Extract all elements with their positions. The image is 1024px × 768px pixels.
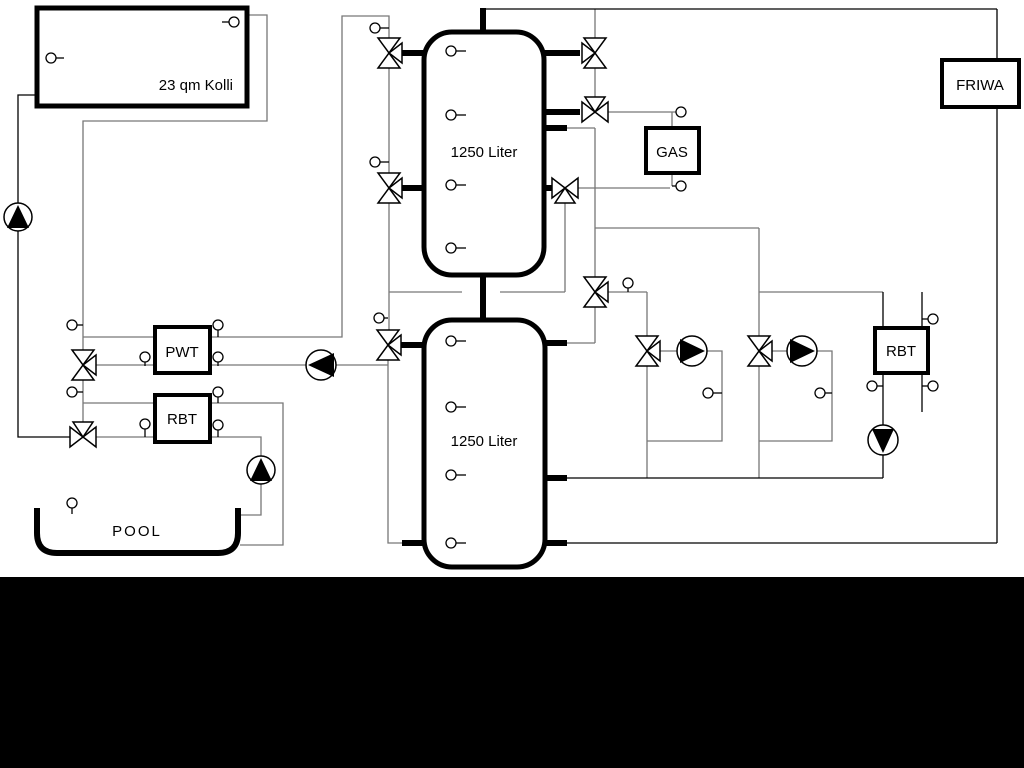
sensor-circuit-2 — [815, 388, 825, 398]
pump-pool — [247, 456, 275, 484]
hydraulic-diagram: 23 qm Kolli 1250 Liter 1250 Liter GAS FR… — [0, 0, 1024, 768]
pipe-gas-supply — [608, 112, 676, 128]
sensor-tank-upper-3 — [446, 180, 456, 190]
tank-upper-label: 1250 Liter — [451, 144, 518, 161]
valve-tank-lower-left — [377, 330, 401, 360]
pipe-heating-branch — [595, 228, 883, 336]
pump-solar — [4, 203, 32, 231]
sensor-rbt-pool-top — [213, 387, 223, 397]
bottom-black-band — [0, 577, 1024, 768]
valve-heating-circuit-2 — [748, 336, 772, 366]
sensor-solar-line-2 — [67, 387, 77, 397]
tank-lower-label: 1250 Liter — [451, 433, 518, 450]
sensor-gas-return — [676, 181, 686, 191]
sensor-rbt-pool-bottom — [213, 420, 223, 430]
pipe-pumpgroup1 — [647, 351, 722, 478]
pipe-pumpgroup2 — [759, 351, 832, 478]
sensor-collector-left — [46, 53, 56, 63]
pool-label: POOL — [112, 523, 162, 540]
pipe-valveC-out — [608, 292, 647, 336]
sensor-tank-upper-2 — [446, 110, 456, 120]
sensor-tank-lower-2 — [446, 402, 456, 412]
collector-label: 23 qm Kolli — [159, 77, 233, 94]
valve-heating-supply — [584, 277, 608, 307]
rbt-right-label: RBT — [886, 343, 916, 360]
valve-gas-return — [552, 178, 578, 203]
sensor-pwt-out-top — [213, 320, 223, 330]
valve-tank-upper-right-top — [582, 38, 606, 68]
sensor-rbt-right-top — [928, 314, 938, 324]
sensor-tank-upper-1 — [446, 46, 456, 56]
diagram-canvas: 23 qm Kolli 1250 Liter 1250 Liter GAS FR… — [0, 0, 1024, 768]
valve-gas-supply — [582, 97, 608, 122]
sensor-collector-outlet — [229, 17, 239, 27]
friwa-label: FRIWA — [956, 77, 1004, 94]
sensor-valve-column-1 — [370, 23, 380, 33]
sensor-tank-upper-4 — [446, 243, 456, 253]
valve-tank-upper-left-top — [378, 38, 402, 68]
sensor-tank-lower-1 — [446, 336, 456, 346]
pump-heating-2 — [787, 336, 817, 366]
pipe-collector-return — [18, 95, 70, 437]
sensor-tank-lower-4 — [446, 538, 456, 548]
pump-rbt-right — [868, 425, 898, 455]
gas-label: GAS — [656, 144, 688, 161]
pipe-gas-return — [578, 173, 672, 188]
sensor-pwt-in — [140, 352, 150, 362]
sensor-rbt-right-primary — [867, 381, 877, 391]
valve-solar-pwt — [72, 350, 96, 380]
pipe-dhw-main — [483, 9, 997, 543]
sensor-tank-lower-3 — [446, 470, 456, 480]
pump-pwt-secondary — [306, 350, 336, 380]
rbt-pool-label: RBT — [167, 411, 197, 428]
sensor-rbt-pool-in — [140, 419, 150, 429]
pipe-tank-valve-column — [388, 68, 402, 543]
sensor-valve-column-2 — [370, 157, 380, 167]
valve-tank-upper-left-bottom — [378, 173, 402, 203]
sensor-rbt-right-bottom — [928, 381, 938, 391]
sensor-gas-supply — [676, 107, 686, 117]
sensor-solar-line-1 — [67, 320, 77, 330]
sensor-pool — [67, 498, 77, 508]
sensor-valve-column-3 — [374, 313, 384, 323]
sensor-circuit-1 — [703, 388, 713, 398]
sensor-pwt-out-bottom — [213, 352, 223, 362]
pipe-valveC-bottom — [567, 307, 595, 343]
valve-solar-pool — [70, 422, 96, 447]
valve-heating-circuit-1 — [636, 336, 660, 366]
pwt-label: PWT — [165, 344, 198, 361]
sensor-heating-supply — [623, 278, 633, 288]
pump-heating-1 — [677, 336, 707, 366]
